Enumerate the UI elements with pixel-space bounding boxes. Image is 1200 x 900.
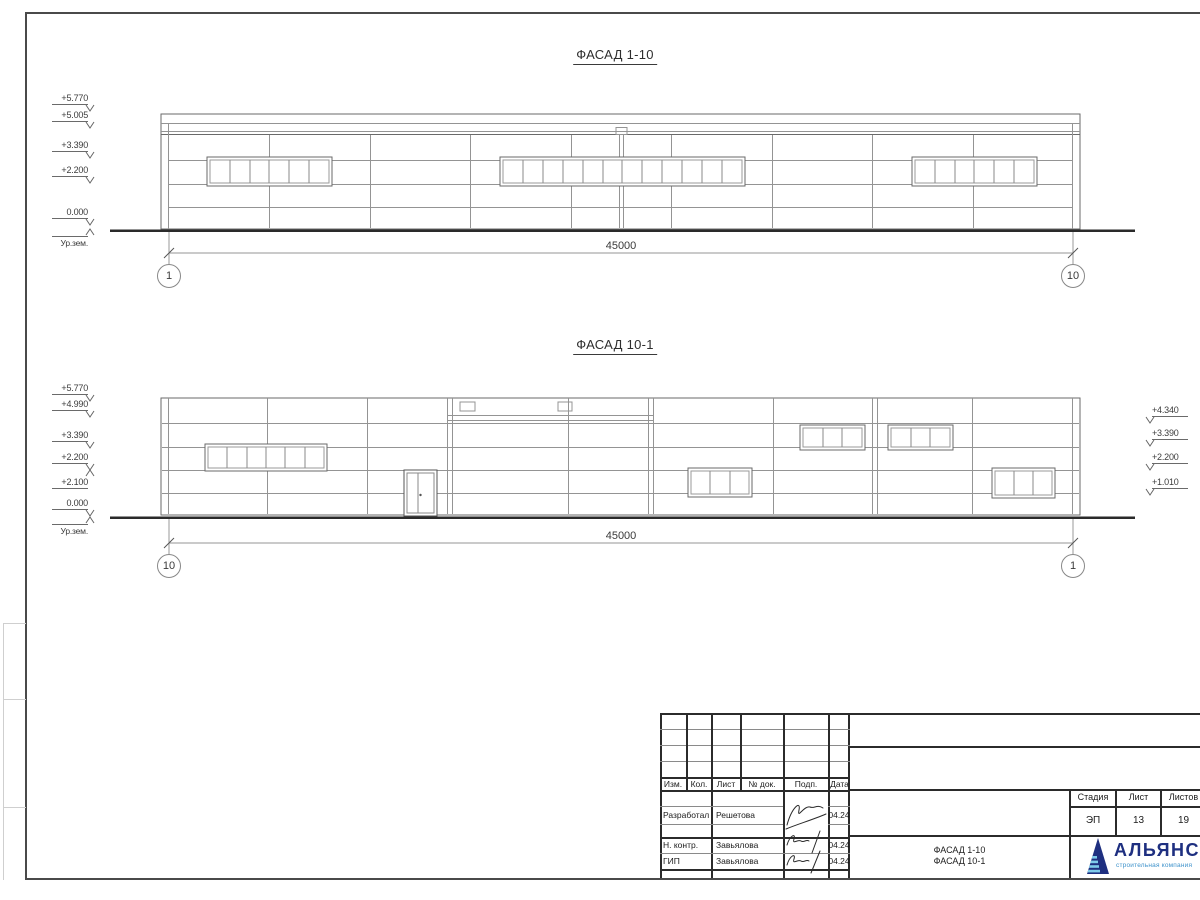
elevation-mark: +3.390 [1152, 428, 1188, 440]
elevation-mark: +3.390 [52, 430, 88, 442]
sheet-header: Лист [1117, 792, 1160, 802]
line [660, 824, 783, 825]
line [828, 806, 850, 807]
line [850, 835, 1200, 837]
doc-title-line2: ФАСАД 10-1 [850, 856, 1069, 867]
staff-date: 04.24 [828, 810, 850, 820]
line [1069, 806, 1200, 808]
staff-name: Завьялова [716, 856, 758, 866]
line [660, 745, 850, 746]
rev-col-data: Дата [829, 779, 850, 789]
sheet-frame-left [25, 12, 27, 880]
rev-col-podp: Подп. [784, 779, 828, 789]
elevation-mark: +4.990 [52, 399, 88, 411]
line [660, 806, 783, 807]
sheets-value: 19 [1162, 815, 1200, 826]
dimension-label: 45000 [591, 241, 651, 252]
elevation-mark: +2.200 [52, 452, 88, 464]
elevation-mark: +5.005 [52, 110, 88, 122]
line [660, 790, 850, 792]
line [850, 746, 1200, 748]
line [828, 824, 850, 825]
line [660, 713, 662, 880]
company-logo-icon [1086, 837, 1110, 875]
drawing-sheet: { "colors": {"logo_dark": "#1e2f80", "lo… [0, 0, 1200, 900]
elevation-mark: +3.390 [52, 140, 88, 152]
signature-scribble [784, 847, 827, 875]
elevation-mark: 0.000 [52, 207, 88, 219]
elevation-mark: +1.010 [1152, 477, 1188, 489]
elevation-mark: +5.770 [52, 93, 88, 105]
rev-col-ndok: № док. [741, 779, 783, 789]
ground-level-mark: Ур.зем. [52, 236, 88, 248]
elevation-mark: +4.340 [1152, 405, 1188, 417]
margin-line [3, 807, 26, 808]
rev-col-list: Лист [712, 779, 740, 789]
margin-line [3, 623, 26, 624]
dimension-label: 45000 [591, 531, 651, 542]
grid-bubble: 1 [158, 265, 181, 288]
staff-role: Н. контр. [663, 840, 698, 850]
doc-title-line1: ФАСАД 1-10 [850, 845, 1069, 856]
facade1-title: ФАСАД 1-10 [573, 48, 657, 65]
staff-date: 04.24 [828, 856, 850, 866]
facade2-title: ФАСАД 10-1 [573, 338, 657, 355]
elevation-mark: 0.000 [52, 498, 88, 510]
grid-bubble: 10 [1062, 265, 1085, 288]
sheet-value: 13 [1117, 815, 1160, 826]
line [660, 729, 850, 730]
sheet-frame-top [25, 12, 1200, 14]
company-name: АЛЬЯНС [1114, 840, 1200, 860]
line [711, 713, 713, 880]
grid-bubble: 1 [1062, 555, 1085, 578]
stage-value: ЭП [1071, 815, 1115, 826]
line [850, 789, 1200, 791]
elevation-mark: +2.200 [52, 165, 88, 177]
line [1069, 789, 1071, 880]
margin-line [3, 623, 4, 880]
margin-line [3, 699, 26, 700]
line [828, 713, 830, 880]
rev-col-izm: Изм. [660, 779, 686, 789]
sheet-frame-bottom [25, 878, 1200, 880]
rev-col-kol: Кол. [687, 779, 711, 789]
elevation-mark: +2.100 [52, 477, 88, 489]
grid-bubble: 10 [158, 555, 181, 578]
staff-date: 04.24 [828, 840, 850, 850]
title-block: Изм. Кол. Лист № док. Подп. Дата Разрабо… [660, 713, 1200, 880]
staff-role: Разработал [663, 810, 709, 820]
ground-level-mark: Ур.зем. [52, 524, 88, 536]
sheets-header: Листов [1162, 792, 1200, 802]
line [660, 761, 850, 762]
company-subtitle: строительная компания [1116, 862, 1192, 869]
stage-header: Стадия [1071, 792, 1115, 802]
elevation-mark: +2.200 [1152, 452, 1188, 464]
staff-role: ГИП [663, 856, 680, 866]
elevation-mark: +5.770 [52, 383, 88, 395]
staff-name: Решетова [716, 810, 755, 820]
staff-name: Завьялова [716, 840, 758, 850]
